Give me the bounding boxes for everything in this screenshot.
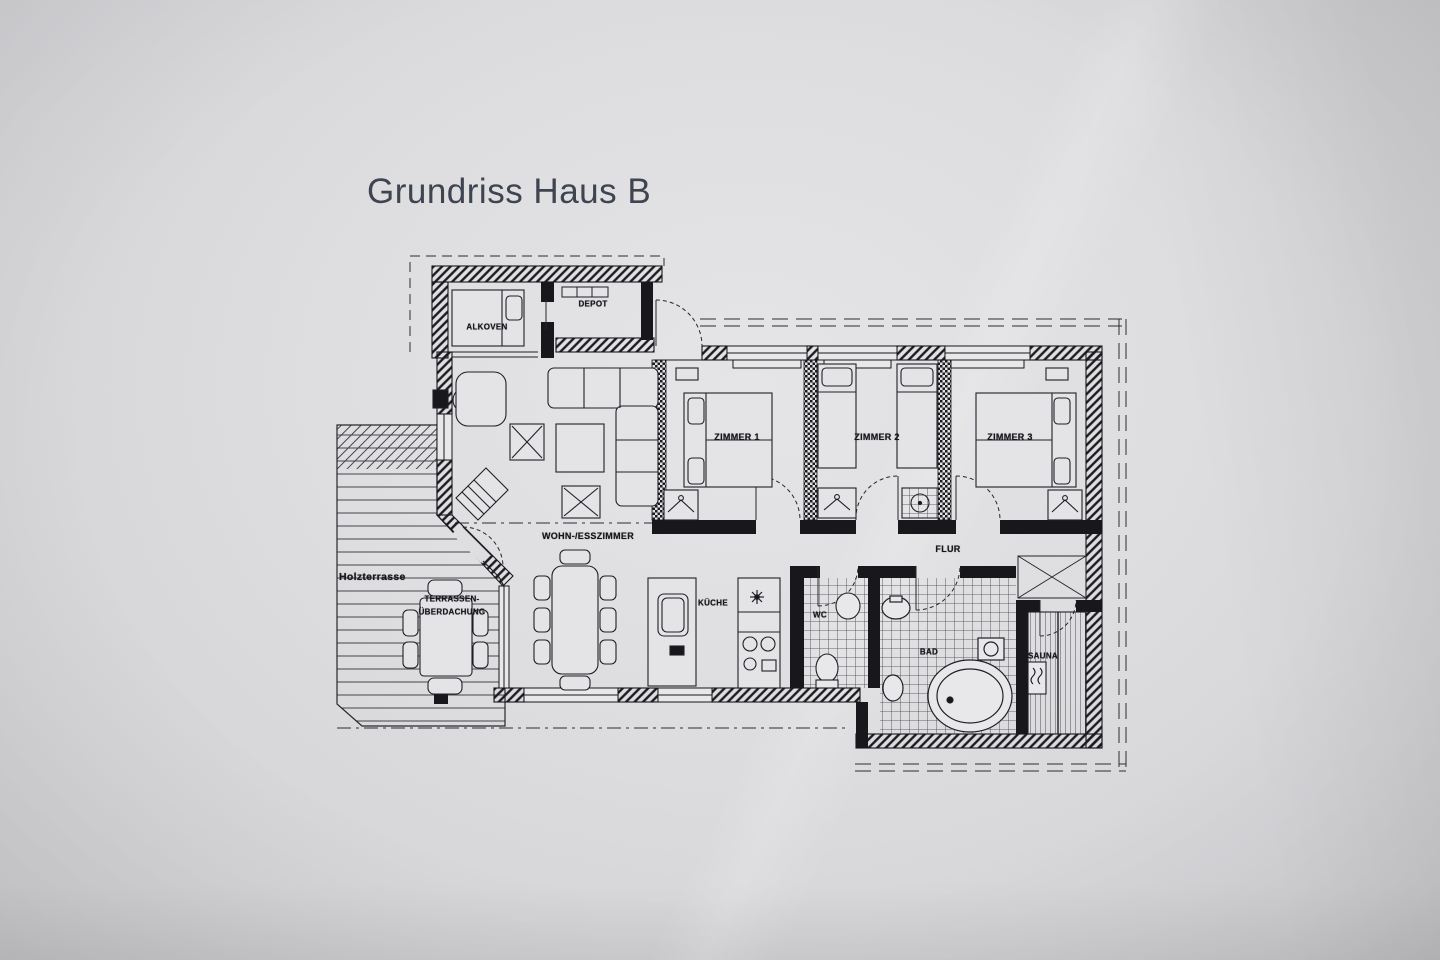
coffee-table-icon [556,424,604,472]
wardrobe-icon [1048,490,1082,520]
room-label-wohnesszimmer: WOHN-/ESSZIMMER [542,531,634,541]
room-label-kueche: KÜCHE [698,599,728,608]
wardrobe-icon [664,490,698,520]
door-entry [656,300,702,346]
armchair-icon [456,372,506,426]
wardrobe-icon [818,488,856,518]
depot-shelf-icon [562,287,608,297]
stool-icon [510,424,544,460]
shower-icon [902,488,938,518]
single-bed-icon [818,364,856,468]
window-dining-south2 [658,688,712,702]
nightstand-icon [1046,368,1068,380]
washbasin-icon [836,593,860,619]
label-terrassen-line2: ÜBERDACHUNG [419,608,486,617]
sauna-room [1028,612,1086,734]
room-label-zimmer1: ZIMMER 1 [714,432,759,442]
window-zimmer2 [818,346,897,360]
floor-plan-photo: Grundriss Haus B ALKOVEN DEPOT ZIMMER 1 … [0,0,1440,960]
room-label-zimmer2: ZIMMER 2 [854,432,899,442]
stove-icon [433,390,448,408]
window-sill [951,360,1024,368]
washbasin-icon [882,596,910,619]
room-label-wc: WC [813,611,827,620]
zimmer3-furniture [976,368,1082,520]
window-sill [733,360,801,368]
kitchen-units [648,578,780,688]
room-label-alkoven: ALKOVEN [466,323,507,332]
toilet-icon [816,654,838,688]
stool-icon [562,486,600,518]
hedge-area [337,425,437,469]
single-bed-icon [897,364,937,468]
plan-title: Grundriss Haus B [367,172,651,212]
window-zimmer3 [945,346,1030,360]
dining-set-icon [534,550,616,690]
bathtub-icon [928,660,1012,732]
door-zimmer2 [856,476,898,520]
floor-plan-drawing [0,0,1440,960]
toilet-icon [883,675,903,701]
sideboard-icon [456,468,508,520]
room-label-sauna: SAUNA [1028,652,1058,661]
sauna-heater-icon [1028,662,1046,694]
room-label-bad: BAD [920,648,938,657]
room-label-depot: DEPOT [578,300,607,309]
stove-burner-icon [750,590,764,604]
washing-machine-icon [978,638,1004,660]
sink-icon [658,594,688,636]
glass-front-terrace [499,586,509,688]
window-living-west [437,414,452,460]
room-label-zimmer3: ZIMMER 3 [987,432,1032,442]
living-room-furniture [433,368,658,520]
label-holzterrasse: Holzterrasse [339,571,406,583]
label-terrassen-line1: TERRASSEN- [424,595,479,604]
window-zimmer1 [727,346,807,360]
nightstand-icon [676,368,698,380]
room-label-flur: FLUR [935,544,960,554]
duct-shaft [1018,556,1086,598]
